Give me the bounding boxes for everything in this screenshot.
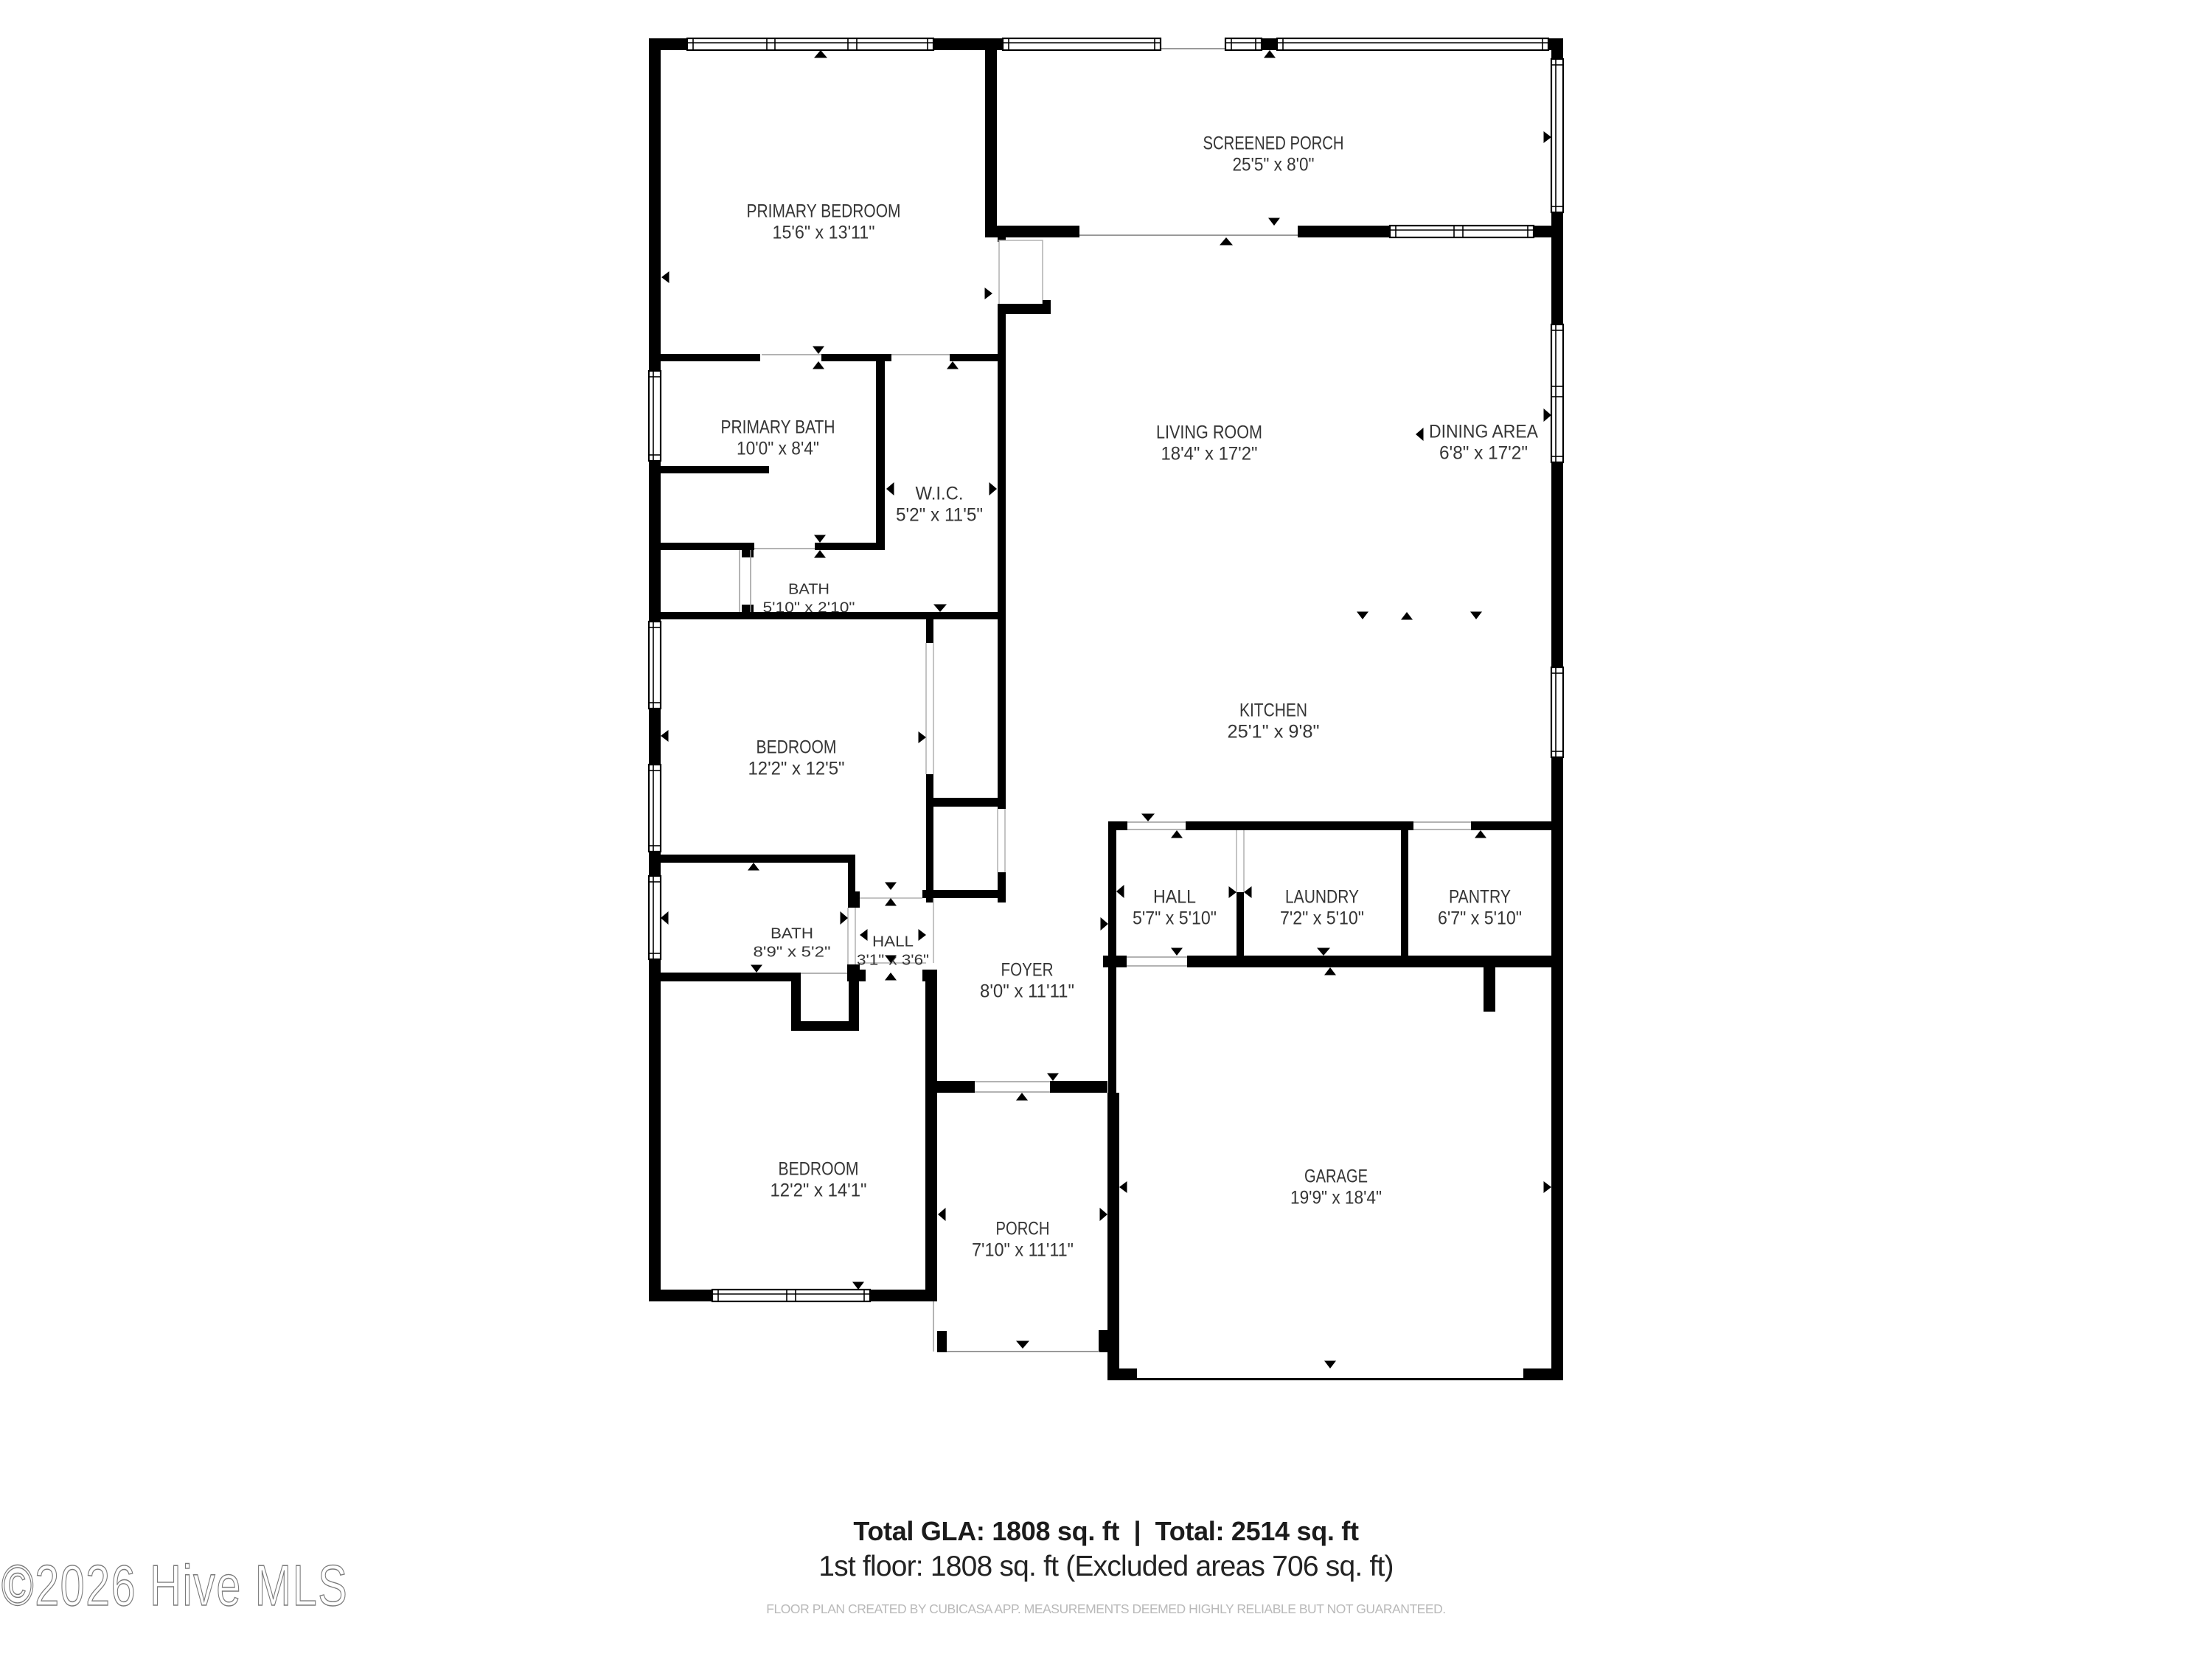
svg-text:19'9" x 18'4": 19'9" x 18'4" bbox=[1290, 1188, 1382, 1208]
svg-text:15'6" x 13'11": 15'6" x 13'11" bbox=[773, 223, 875, 243]
svg-text:LIVING ROOM: LIVING ROOM bbox=[1156, 422, 1262, 443]
svg-text:PORCH: PORCH bbox=[996, 1219, 1050, 1239]
svg-text:7'2" x 5'10": 7'2" x 5'10" bbox=[1280, 908, 1364, 929]
svg-text:LAUNDRY: LAUNDRY bbox=[1285, 887, 1359, 908]
svg-text:BATH: BATH bbox=[788, 581, 829, 597]
svg-text:BEDROOM: BEDROOM bbox=[757, 737, 837, 758]
svg-text:5'7" x 5'10": 5'7" x 5'10" bbox=[1133, 908, 1217, 929]
svg-text:PANTRY: PANTRY bbox=[1449, 887, 1511, 908]
svg-text:DINING AREA: DINING AREA bbox=[1429, 422, 1538, 442]
svg-text:8'9" x 5'2": 8'9" x 5'2" bbox=[754, 944, 831, 960]
svg-text:6'7" x 5'10": 6'7" x 5'10" bbox=[1438, 908, 1522, 929]
svg-text:HALL: HALL bbox=[1153, 887, 1196, 908]
svg-text:BEDROOM: BEDROOM bbox=[779, 1159, 859, 1180]
svg-text:6'8" x 17'2": 6'8" x 17'2" bbox=[1439, 443, 1528, 464]
svg-text:FOYER: FOYER bbox=[1001, 960, 1054, 981]
svg-text:7'10" x 11'11": 7'10" x 11'11" bbox=[972, 1240, 1074, 1261]
svg-text:HALL: HALL bbox=[872, 933, 914, 950]
svg-text:GARAGE: GARAGE bbox=[1304, 1166, 1368, 1187]
svg-text:12'2" x 14'1": 12'2" x 14'1" bbox=[771, 1180, 867, 1201]
svg-text:BATH: BATH bbox=[771, 925, 813, 942]
svg-text:SCREENED PORCH: SCREENED PORCH bbox=[1203, 133, 1344, 154]
svg-text:3'1" x 3'6": 3'1" x 3'6" bbox=[857, 952, 929, 968]
svg-text:25'5" x 8'0": 25'5" x 8'0" bbox=[1233, 155, 1315, 175]
svg-text:10'0" x 8'4": 10'0" x 8'4" bbox=[737, 439, 819, 459]
svg-text:KITCHEN: KITCHEN bbox=[1239, 700, 1307, 721]
svg-text:25'1" x 9'8": 25'1" x 9'8" bbox=[1228, 722, 1320, 742]
svg-text:12'2" x 12'5": 12'2" x 12'5" bbox=[748, 759, 845, 779]
svg-text:PRIMARY BATH: PRIMARY BATH bbox=[721, 417, 835, 438]
svg-text:8'0" x 11'11": 8'0" x 11'11" bbox=[980, 981, 1074, 1002]
svg-text:W.I.C.: W.I.C. bbox=[916, 484, 964, 504]
svg-text:18'4" x 17'2": 18'4" x 17'2" bbox=[1161, 444, 1258, 465]
svg-text:PRIMARY BEDROOM: PRIMARY BEDROOM bbox=[747, 201, 901, 222]
svg-text:5'2" x 11'5": 5'2" x 11'5" bbox=[896, 505, 983, 526]
